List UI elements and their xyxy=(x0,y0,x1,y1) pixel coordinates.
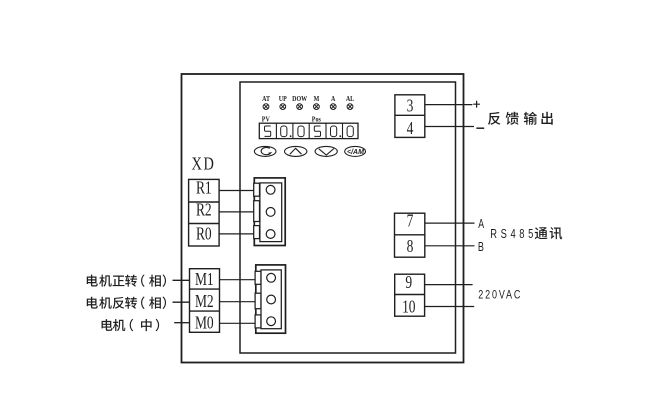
svg-text:DOW: DOW xyxy=(292,95,307,103)
svg-text:10: 10 xyxy=(402,298,416,317)
svg-text:M1: M1 xyxy=(195,270,214,289)
svg-text:</AM: </AM xyxy=(347,149,364,156)
svg-text:R1: R1 xyxy=(196,179,212,198)
svg-text:B: B xyxy=(478,241,484,255)
svg-text:AT: AT xyxy=(262,95,270,103)
svg-text:4: 4 xyxy=(407,119,414,138)
svg-text:220VAC: 220VAC xyxy=(478,289,522,303)
svg-text:3: 3 xyxy=(407,97,414,116)
svg-text:AL: AL xyxy=(346,95,355,103)
svg-text:8: 8 xyxy=(407,237,414,256)
svg-text:R0: R0 xyxy=(196,225,212,244)
svg-text:XD: XD xyxy=(192,153,216,174)
svg-text:A: A xyxy=(331,95,335,103)
svg-text:7: 7 xyxy=(407,212,414,231)
svg-text:M: M xyxy=(314,95,320,103)
svg-text:RS485: RS485 xyxy=(490,228,537,242)
svg-text:PV: PV xyxy=(262,116,270,124)
svg-text:UP: UP xyxy=(279,95,287,103)
svg-text:Pos: Pos xyxy=(312,116,321,124)
svg-text:M0: M0 xyxy=(195,314,214,333)
svg-text:A: A xyxy=(478,218,484,232)
svg-text:R2: R2 xyxy=(196,201,212,220)
svg-text:9: 9 xyxy=(405,273,412,292)
svg-text:M2: M2 xyxy=(195,292,214,311)
